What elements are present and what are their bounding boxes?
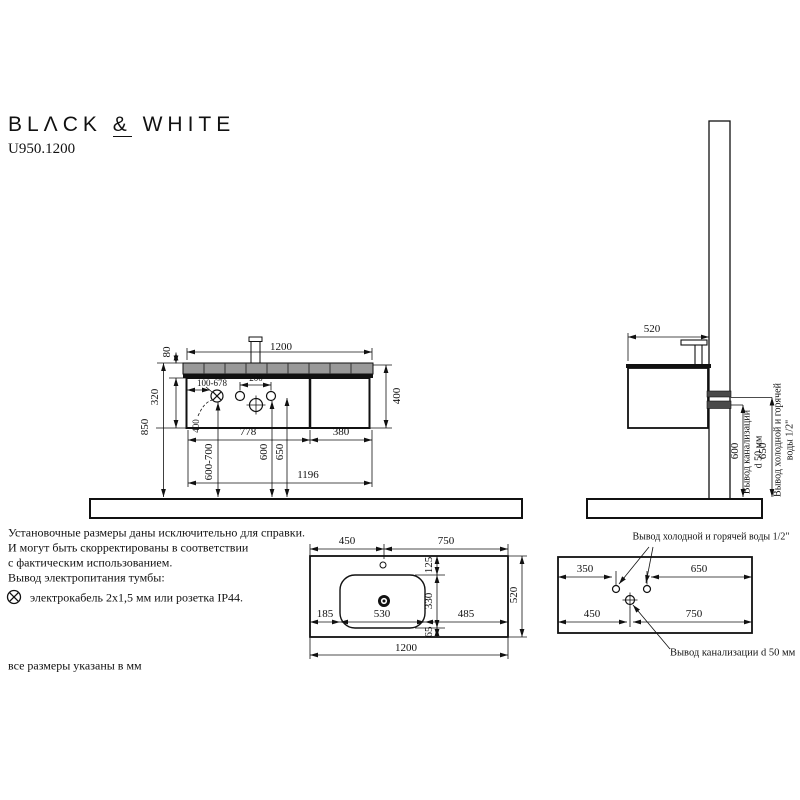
dim-front-strip: 80	[161, 347, 173, 358]
dim-sink-530: 530	[374, 608, 391, 620]
technical-drawing-sheet: BLΛCK & WHITE U950.1200	[0, 0, 800, 800]
dim-water-floor: 650	[274, 444, 286, 461]
floor-right	[587, 499, 762, 518]
wall-drain-label: Вывод канализации d 50 мм	[670, 648, 795, 659]
water-hole-left	[236, 392, 245, 401]
dim-sink-330: 330	[423, 593, 435, 610]
side-drain-note: Вывод канализации d 50 мм	[742, 410, 765, 494]
side-water-note-line1: Вывод холодной и горячей	[773, 383, 785, 497]
dim-sink-65: 65	[423, 627, 435, 638]
front-view	[90, 337, 522, 518]
drain-plan	[378, 595, 390, 607]
dim-hole-spacing: 200	[249, 373, 263, 383]
sink-top-view	[310, 544, 527, 659]
dim-sink-520: 520	[508, 587, 520, 604]
floor-left	[90, 499, 522, 518]
side-drain-note-line2: d 50 мм	[753, 436, 765, 469]
dim-sink-750: 750	[438, 535, 455, 547]
dim-wall-450: 450	[584, 608, 601, 620]
dim-socket-note: 400	[191, 419, 201, 433]
note-line1: Установочные размеры даны исключительно …	[8, 526, 305, 541]
footer-note: все размеры указаны в мм	[8, 659, 142, 674]
dim-front-cabinet-height: 400	[391, 388, 403, 405]
note-line2: И могут быть скорректированы в соответст…	[8, 541, 248, 556]
dim-front-body: 320	[149, 389, 161, 406]
dim-left-section: 778	[240, 426, 257, 438]
socket-note-icon	[8, 591, 21, 604]
dim-bottom-width: 1196	[297, 469, 319, 481]
note-line5: электрокабель 2х1,5 мм или розетка IP44.	[30, 591, 243, 606]
dim-wall-650: 650	[691, 563, 708, 575]
cabinet-side	[628, 368, 708, 428]
wall-title: Вывод холодной и горячей воды 1/2"	[633, 532, 790, 543]
drain-pipe	[707, 401, 731, 409]
dim-front-total-height: 850	[139, 419, 151, 436]
water-hole-right	[267, 392, 276, 401]
counter-strip	[183, 363, 373, 374]
dim-side-drain-height: 600	[729, 443, 741, 460]
dim-drain-floor: 600	[258, 444, 270, 461]
dim-wall-350: 350	[577, 563, 594, 575]
faucet-side	[681, 340, 707, 365]
dim-sink-485: 485	[458, 608, 475, 620]
side-water-note-line2: воды 1/2"	[784, 420, 796, 461]
dim-sink-125: 125	[423, 557, 435, 574]
faucet-front	[249, 337, 262, 363]
wall-column	[709, 121, 730, 499]
side-water-note: Вывод холодной и горячей воды 1/2"	[773, 383, 796, 497]
dim-side-depth: 520	[644, 323, 661, 335]
dim-socket-range: 100-678	[197, 378, 227, 388]
dim-sink-185: 185	[317, 608, 334, 620]
dim-sink-1200: 1200	[395, 642, 417, 654]
note-line3: с фактическим использованием.	[8, 556, 172, 571]
socket-icon	[211, 390, 223, 402]
dim-sink-450: 450	[339, 535, 356, 547]
dim-socket-floor: 600-700	[203, 444, 215, 481]
dim-right-section: 380	[333, 426, 350, 438]
water-pipe	[707, 391, 731, 397]
dim-front-width: 1200	[270, 341, 292, 353]
side-drain-note-line1: Вывод канализации	[742, 410, 754, 494]
note-line4: Вывод электропитания тумбы:	[8, 571, 165, 586]
dim-wall-750: 750	[686, 608, 703, 620]
